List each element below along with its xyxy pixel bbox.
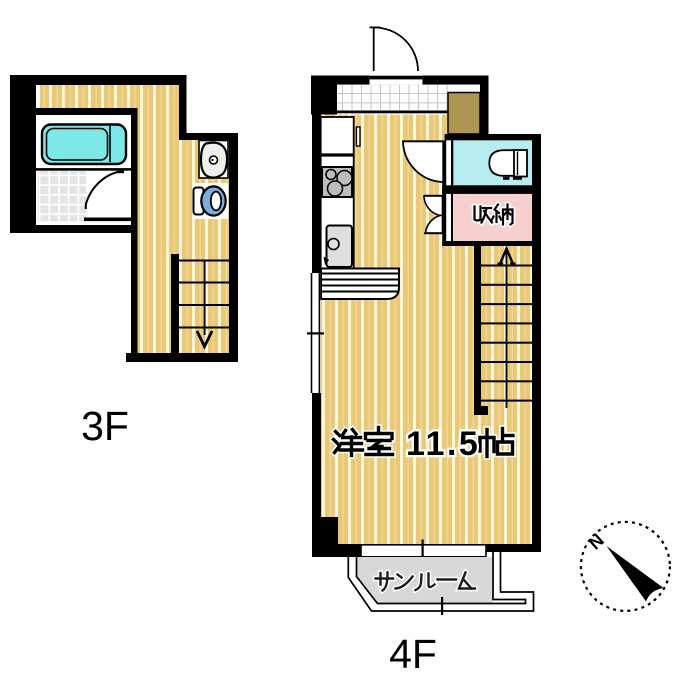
svg-text:4F: 4F	[389, 631, 437, 677]
svg-text:11.5: 11.5	[406, 425, 480, 463]
svg-text:3F: 3F	[81, 403, 129, 449]
